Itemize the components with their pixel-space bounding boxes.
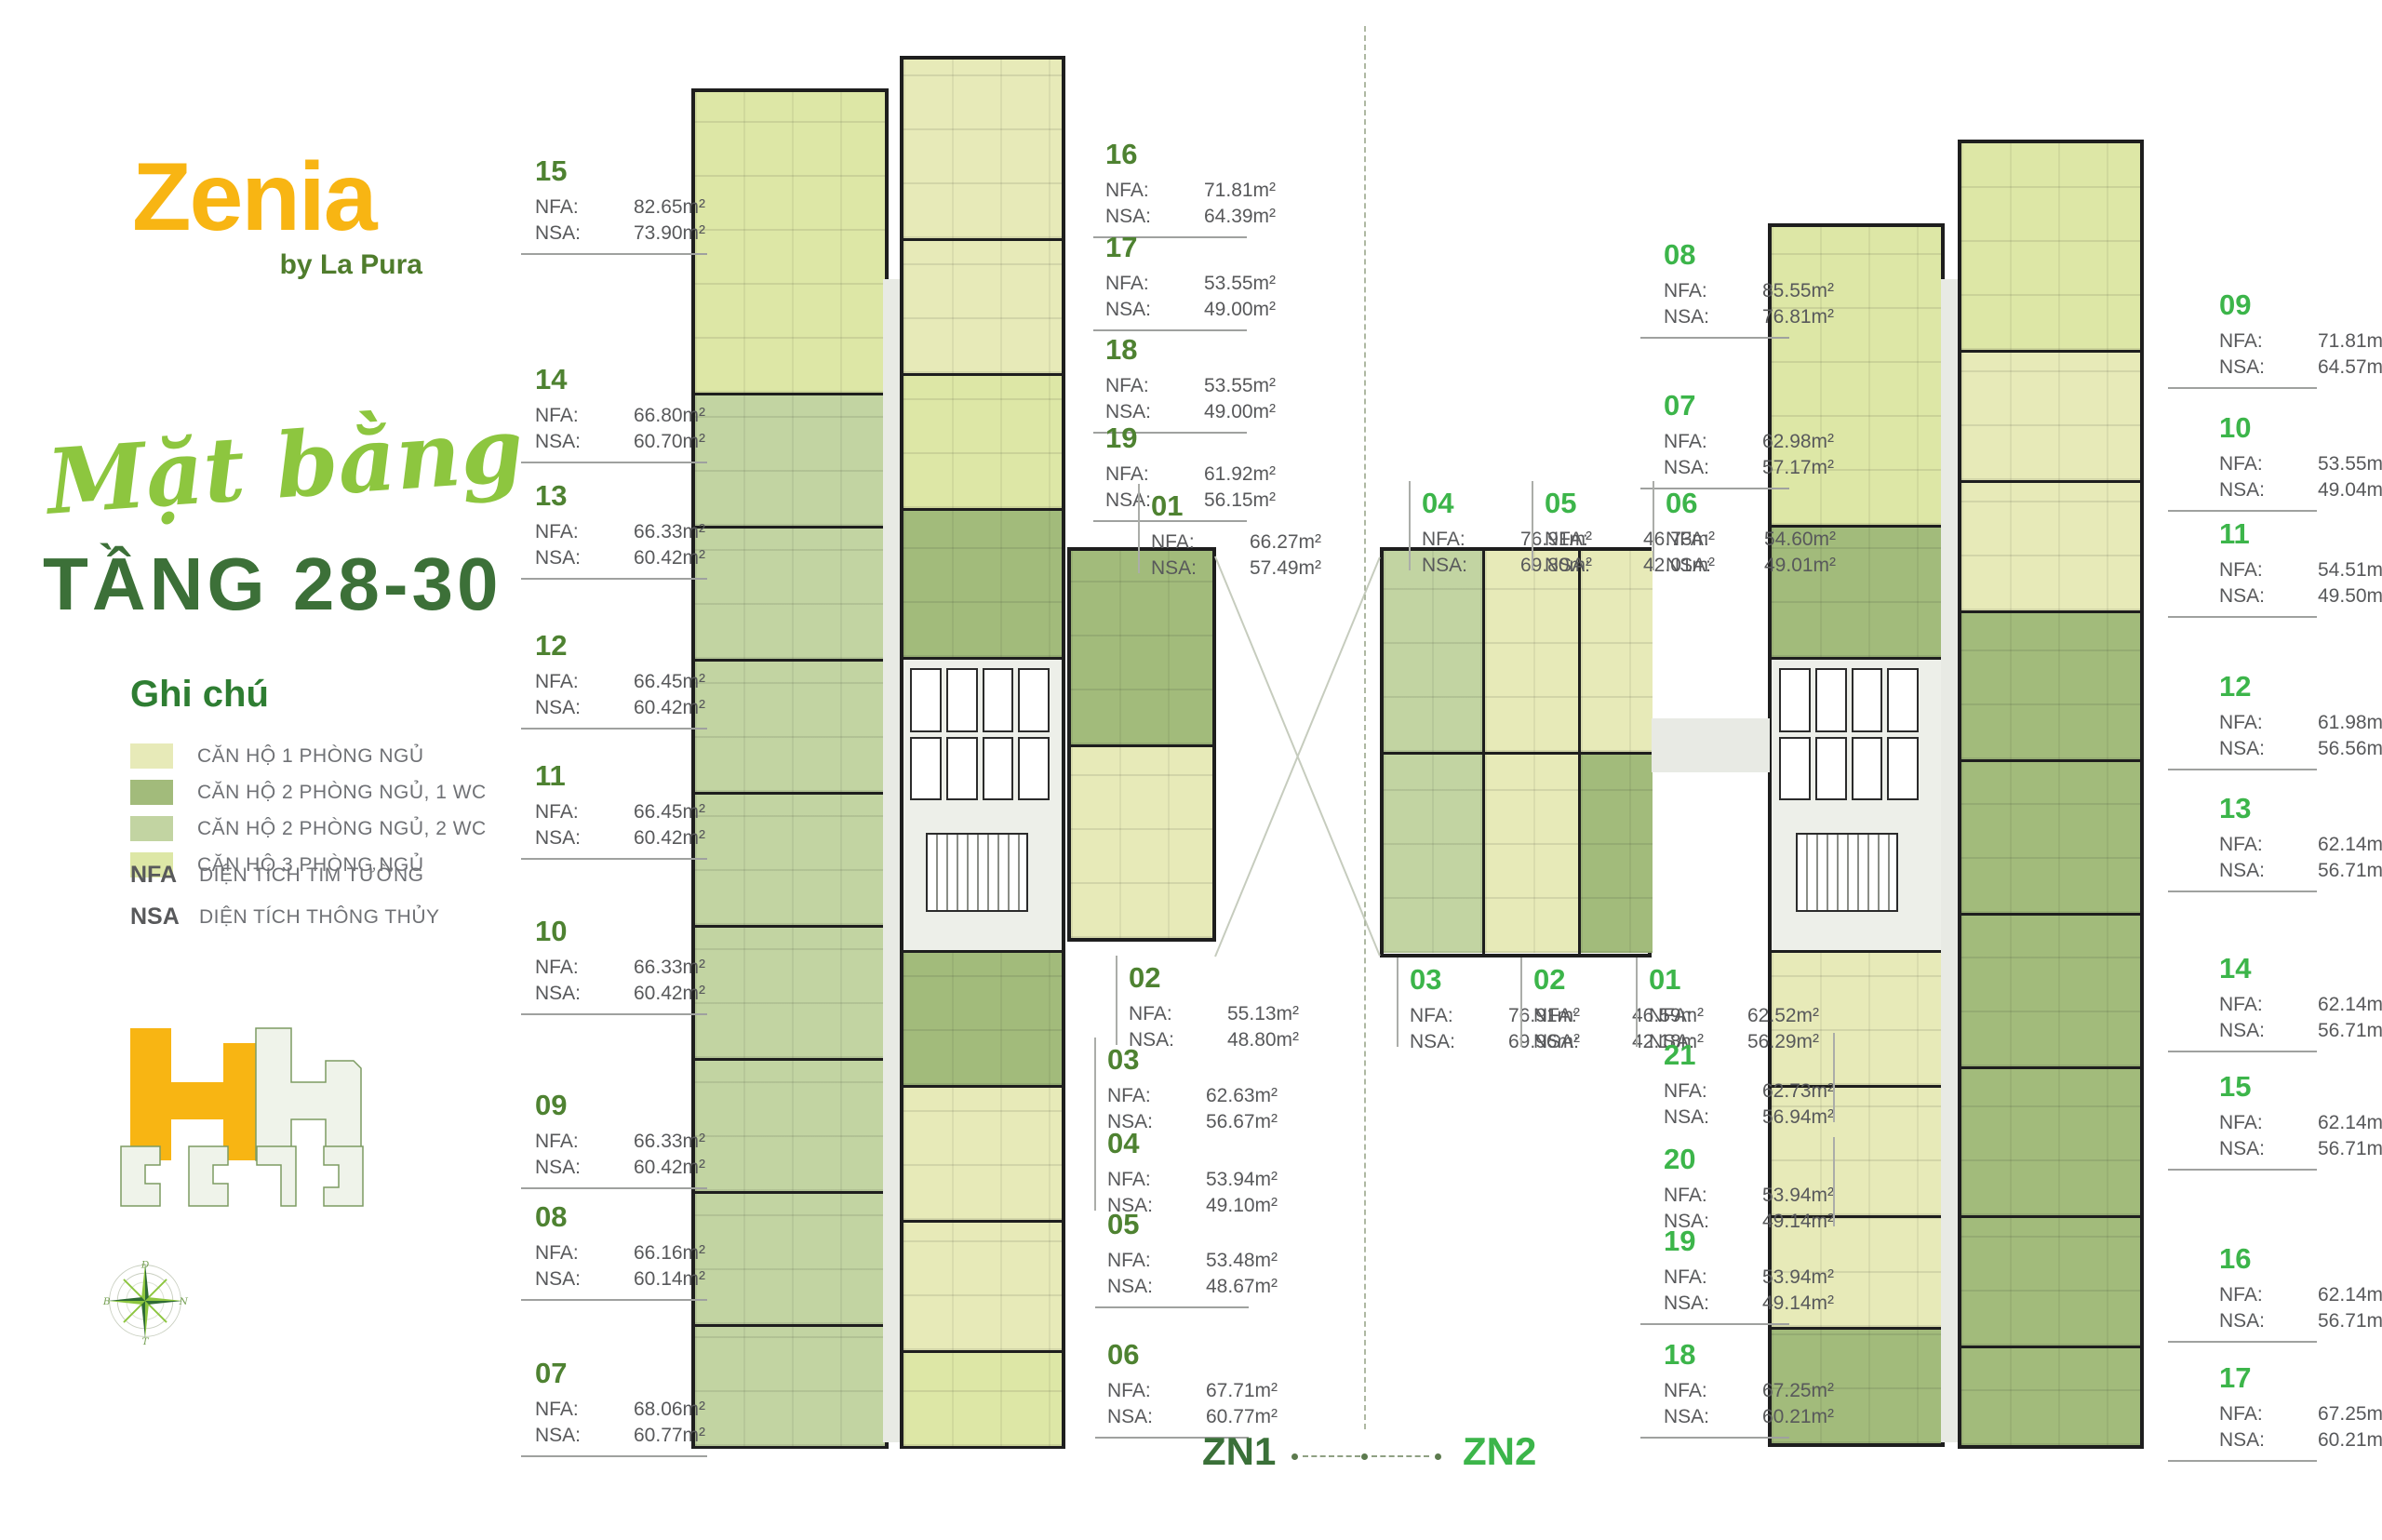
area-value: 56.71m² <box>2318 1136 2382 1162</box>
area-value: 53.94m² <box>1762 1265 1834 1291</box>
abbreviation-key: NFA <box>130 862 199 889</box>
unit-number: 10 <box>2219 413 2382 442</box>
apartment-unit-block <box>1581 752 1653 953</box>
area-value: 66.33m² <box>634 1129 705 1155</box>
unit-area-row: NSA:56.56m² <box>2219 736 2382 762</box>
unit-area-row: NSA:49.01m² <box>1666 553 1861 579</box>
area-value: 85.55m² <box>1762 278 1834 304</box>
elevator-cell <box>983 737 1014 801</box>
area-value: 48.67m² <box>1206 1274 1278 1300</box>
callout-leader-rule <box>2168 616 2317 618</box>
unit-callout-zn2-10: 10NFA:53.55m²NSA:49.04m² <box>2219 413 2382 503</box>
callout-leader-rule <box>521 1455 707 1457</box>
legend-item: CĂN HỘ 2 PHÒNG NGỦ, 2 WC <box>130 810 487 847</box>
site-keyplan <box>119 1024 370 1219</box>
brand-logo: Zenia by La Pura <box>132 149 426 281</box>
legend-item-label: CĂN HỘ 1 PHÒNG NGỦ <box>197 745 424 768</box>
unit-callout-zn1-05: 05NFA:53.48m²NSA:48.67m² <box>1107 1210 1303 1300</box>
area-label: NFA: <box>1107 1378 1161 1404</box>
unit-area-row: NFA:67.71m² <box>1107 1378 1303 1404</box>
keyplan-building-outline <box>256 1028 361 1160</box>
unit-callout-zn1-02: 02NFA:55.13m²NSA:48.80m² <box>1129 963 1324 1053</box>
unit-number: 17 <box>1105 233 1301 261</box>
unit-callout-zn2-16: 16NFA:62.14m²NSA:56.71m² <box>2219 1244 2382 1334</box>
unit-number: 16 <box>2219 1244 2382 1273</box>
unit-callout-zn1-12: 12NFA:66.45m²NSA:60.42m² <box>535 631 730 721</box>
area-label: NFA: <box>1664 278 1718 304</box>
area-label: NFA: <box>1533 1003 1587 1029</box>
area-label: NFA: <box>1664 1265 1718 1291</box>
area-value: 53.48m² <box>1206 1248 1278 1274</box>
zn1-center-units <box>1067 547 1216 942</box>
unit-area-row: NFA:67.25m² <box>1664 1378 1859 1404</box>
area-value: 66.27m² <box>1250 529 1321 556</box>
area-label: NFA: <box>535 194 589 221</box>
apartment-unit-block <box>1961 610 2140 759</box>
area-value: 60.77m² <box>1206 1404 1278 1430</box>
unit-number: 20 <box>1664 1145 1859 1173</box>
apartment-unit-block <box>903 508 1062 657</box>
area-label: NSA: <box>2219 477 2273 503</box>
zn2-elevator-bank <box>1779 668 1919 800</box>
unit-number: 15 <box>535 156 730 185</box>
callout-leader-rule <box>1093 329 1247 331</box>
floorplan-poster: Zenia by La Pura Mặt bằng TẦNG 28-30 Ghi… <box>0 0 2382 1540</box>
zone-connector-dot <box>1291 1453 1298 1460</box>
legend-abbreviations: NFADIỆN TÍCH TIM TƯỜNGNSADIỆN TÍCH THÔNG… <box>130 854 440 938</box>
area-label: NFA: <box>2219 1282 2273 1308</box>
area-value: 60.77m² <box>634 1423 705 1449</box>
apartment-unit-block <box>1961 143 2140 350</box>
callout-leader-rule <box>521 462 707 463</box>
callout-leader-rule <box>521 1013 707 1015</box>
unit-area-row: NFA:62.14m² <box>2219 992 2382 1018</box>
zone-connector-dot <box>1435 1453 1441 1460</box>
area-value: 82.65m² <box>634 194 705 221</box>
area-label: NSA: <box>2219 583 2273 609</box>
apartment-unit-block <box>1961 350 2140 480</box>
area-label: NSA: <box>1533 1029 1587 1055</box>
unit-number: 19 <box>1105 423 1301 452</box>
unit-callout-zn1-06: 06NFA:67.71m²NSA:60.77m² <box>1107 1340 1303 1430</box>
unit-area-row: NFA:62.63m² <box>1107 1083 1303 1109</box>
unit-number: 13 <box>2219 794 2382 823</box>
unit-area-row: NFA:67.25m² <box>2219 1401 2382 1427</box>
area-value: 62.14m² <box>2318 1282 2382 1308</box>
elevator-cell <box>1887 737 1919 801</box>
unit-area-row: NSA:60.70m² <box>535 429 730 455</box>
unit-number: 10 <box>535 917 730 945</box>
area-label: NSA: <box>2219 1136 2273 1162</box>
unit-area-row: NFA:53.94m² <box>1664 1265 1859 1291</box>
unit-area-row: NSA:60.21m² <box>2219 1427 2382 1453</box>
area-value: 49.14m² <box>1762 1291 1834 1317</box>
unit-callout-zn1-15: 15NFA:82.65m²NSA:73.90m² <box>535 156 730 247</box>
area-label: NFA: <box>535 1397 589 1423</box>
abbreviation-key: NSA <box>130 904 199 931</box>
area-value: 56.71m² <box>2318 1018 2382 1044</box>
unit-area-row: NFA:68.06m² <box>535 1397 730 1423</box>
area-label: NFA: <box>2219 992 2273 1018</box>
area-value: 71.81m² <box>2318 328 2382 355</box>
unit-area-row: NSA:60.42m² <box>535 825 730 851</box>
area-label: NFA: <box>535 799 589 825</box>
apartment-unit-block <box>903 1085 1062 1220</box>
area-label: NFA: <box>535 1129 589 1155</box>
unit-area-row: NFA:66.33m² <box>535 1129 730 1155</box>
area-label: NFA: <box>535 669 589 695</box>
callout-leader-rule <box>521 253 707 255</box>
zn1-corridor <box>883 279 900 1442</box>
area-label: NSA: <box>1664 1105 1718 1131</box>
area-label: NSA: <box>1105 297 1159 323</box>
legend-item: CĂN HỘ 2 PHÒNG NGỦ, 1 WC <box>130 774 487 810</box>
elevator-cell <box>1018 668 1050 732</box>
unit-callout-zn1-18: 18NFA:53.55m²NSA:49.00m² <box>1105 335 1301 425</box>
area-value: 57.49m² <box>1250 556 1321 582</box>
unit-number: 09 <box>2219 290 2382 319</box>
area-label: NFA: <box>1410 1003 1464 1029</box>
zone-label-zn1: ZN1 <box>1202 1429 1276 1474</box>
area-value: 53.55m² <box>2318 451 2382 477</box>
unit-area-row: NFA:85.55m² <box>1664 278 1859 304</box>
zn2-east-wing <box>1958 140 2144 1449</box>
area-label: NFA: <box>2219 1401 2273 1427</box>
unit-area-row: NFA:66.16m² <box>535 1240 730 1266</box>
compass-icon: Đ N T B <box>100 1256 190 1346</box>
unit-area-row: NSA:49.14m² <box>1664 1291 1859 1317</box>
area-label: NFA: <box>1545 527 1599 553</box>
legend-abbreviation: NSADIỆN TÍCH THÔNG THỦY <box>130 896 440 938</box>
legend-item-label: CĂN HỘ 2 PHÒNG NGỦ, 2 WC <box>197 818 487 840</box>
unit-area-row: NFA:82.65m² <box>535 194 730 221</box>
area-label: NSA: <box>535 1155 589 1181</box>
unit-area-row: NFA:62.73m² <box>1664 1078 1859 1105</box>
unit-area-row: NFA:71.81m² <box>1105 178 1301 204</box>
unit-number: 07 <box>535 1359 730 1387</box>
unit-callout-zn2-18: 18NFA:67.25m²NSA:60.21m² <box>1664 1340 1859 1430</box>
area-value: 60.70m² <box>634 429 705 455</box>
area-label: NFA: <box>2219 1110 2273 1136</box>
zn1-stairs <box>926 833 1028 912</box>
unit-column <box>1578 551 1653 954</box>
area-label: NFA: <box>1666 527 1720 553</box>
area-label: NSA: <box>535 429 589 455</box>
unit-area-row: NSA:60.77m² <box>535 1423 730 1449</box>
apartment-unit-block <box>903 373 1062 508</box>
area-value: 67.25m² <box>1762 1378 1834 1404</box>
unit-area-row: NSA:76.81m² <box>1664 304 1859 330</box>
area-label: NSA: <box>1105 204 1159 230</box>
unit-area-row: NFA:54.51m² <box>2219 557 2382 583</box>
elevator-cell <box>910 668 942 732</box>
unit-number: 05 <box>1107 1210 1303 1239</box>
area-label: NFA: <box>2219 710 2273 736</box>
unit-callout-zn2-21: 21NFA:62.73m²NSA:56.94m² <box>1664 1040 1859 1131</box>
area-value: 64.39m² <box>1204 204 1276 230</box>
unit-area-row: NSA:49.04m² <box>2219 477 2382 503</box>
legend-swatch <box>130 780 173 805</box>
apartment-unit-block <box>1384 551 1482 752</box>
unit-number: 01 <box>1151 491 1346 520</box>
callout-leader-rule <box>521 1187 707 1189</box>
legend-heading: Ghi chú <box>130 674 269 716</box>
unit-area-row: NFA:61.98m² <box>2219 710 2382 736</box>
area-label: NFA: <box>1664 1078 1718 1105</box>
unit-number: 12 <box>2219 672 2382 701</box>
abbreviation-label: DIỆN TÍCH TIM TƯỜNG <box>199 864 423 887</box>
area-value: 64.57m² <box>2318 355 2382 381</box>
area-label: NSA: <box>1107 1404 1161 1430</box>
area-value: 57.17m² <box>1762 455 1834 481</box>
unit-callout-zn2-20: 20NFA:53.94m²NSA:49.14m² <box>1664 1145 1859 1235</box>
area-label: NSA: <box>1410 1029 1464 1055</box>
area-label: NFA: <box>2219 557 2273 583</box>
unit-callout-zn1-13: 13NFA:66.33m²NSA:60.42m² <box>535 481 730 571</box>
area-value: 66.33m² <box>634 955 705 981</box>
area-label: NSA: <box>1664 1404 1718 1430</box>
unit-callout-zn2-19: 19NFA:53.94m²NSA:49.14m² <box>1664 1226 1859 1317</box>
svg-text:N: N <box>179 1296 189 1307</box>
area-label: NSA: <box>535 981 589 1007</box>
unit-callout-zn2-12: 12NFA:61.98m²NSA:56.56m² <box>2219 672 2382 762</box>
area-label: NFA: <box>1107 1248 1161 1274</box>
svg-text:B: B <box>102 1296 111 1307</box>
unit-column <box>1482 551 1578 954</box>
callout-leader-rule <box>521 858 707 860</box>
apartment-unit-block <box>1961 759 2140 913</box>
unit-callout-zn1-01: 01NFA:66.27m²NSA:57.49m² <box>1151 491 1346 582</box>
area-label: NFA: <box>2219 328 2273 355</box>
area-value: 62.14m² <box>2318 832 2382 858</box>
unit-callout-zn2-11: 11NFA:54.51m²NSA:49.50m² <box>2219 519 2382 609</box>
callout-leader-line <box>1833 1137 1835 1226</box>
area-value: 61.92m² <box>1204 462 1276 488</box>
area-label: NSA: <box>2219 858 2273 884</box>
area-value: 62.52m² <box>1747 1003 1819 1029</box>
unit-area-row: NFA:53.48m² <box>1107 1248 1303 1274</box>
area-label: NFA: <box>1664 429 1718 455</box>
elevator-cell <box>1887 668 1919 732</box>
apartment-unit-block <box>903 1350 1062 1446</box>
legend-abbreviation: NFADIỆN TÍCH TIM TƯỜNG <box>130 854 440 896</box>
area-value: 53.55m² <box>1204 373 1276 399</box>
area-label: NSA: <box>535 695 589 721</box>
unit-callout-zn2-08: 08NFA:85.55m²NSA:76.81m² <box>1664 240 1859 330</box>
unit-area-row: NFA:62.14m² <box>2219 832 2382 858</box>
area-label: NFA: <box>535 1240 589 1266</box>
area-value: 53.94m² <box>1206 1167 1278 1193</box>
unit-area-row: NSA:64.57m² <box>2219 355 2382 381</box>
callout-leader-line <box>1094 1121 1096 1211</box>
elevator-cell <box>1815 668 1847 732</box>
area-value: 76.81m² <box>1762 304 1834 330</box>
area-value: 60.21m² <box>1762 1404 1834 1430</box>
area-value: 56.94m² <box>1762 1105 1834 1131</box>
brand-name: Zenia <box>132 149 426 246</box>
apartment-unit-block <box>1961 913 2140 1066</box>
callout-leader-rule <box>1640 1437 1789 1439</box>
area-value: 61.98m² <box>2318 710 2382 736</box>
area-label: NSA: <box>1422 553 1476 579</box>
zone-divider-line <box>1364 26 1366 1429</box>
unit-callout-zn1-04: 04NFA:53.94m²NSA:49.10m² <box>1107 1129 1303 1219</box>
area-value: 49.00m² <box>1204 399 1276 425</box>
unit-number: 14 <box>2219 954 2382 983</box>
apartment-unit-block <box>903 950 1062 1085</box>
area-label: NFA: <box>1151 529 1205 556</box>
area-value: 67.25m² <box>2318 1401 2382 1427</box>
unit-number: 13 <box>535 481 730 510</box>
unit-area-row: NFA:61.92m² <box>1105 462 1301 488</box>
area-label: NFA: <box>1107 1083 1161 1109</box>
area-value: 60.14m² <box>634 1266 705 1292</box>
unit-callout-zn2-17: 17NFA:67.25m²NSA:60.21m² <box>2219 1363 2382 1453</box>
area-label: NFA: <box>1664 1378 1718 1404</box>
unit-area-row: NSA:73.90m² <box>535 221 730 247</box>
callout-leader-rule <box>1640 1323 1789 1325</box>
area-label: NFA: <box>1105 271 1159 297</box>
area-value: 56.56m² <box>2318 736 2382 762</box>
unit-number: 07 <box>1664 391 1859 420</box>
callout-leader-rule <box>521 1299 707 1301</box>
area-label: NFA: <box>1105 373 1159 399</box>
area-value: 56.71m² <box>2318 858 2382 884</box>
elevator-cell <box>1852 668 1883 732</box>
unit-number: 02 <box>1129 963 1324 992</box>
area-value: 66.45m² <box>634 799 705 825</box>
callout-leader-rule <box>521 728 707 730</box>
unit-number: 08 <box>535 1202 730 1231</box>
area-value: 49.50m² <box>2318 583 2382 609</box>
unit-number: 03 <box>1107 1045 1303 1074</box>
brand-byline: by La Pura <box>132 249 426 281</box>
area-label: NSA: <box>1664 304 1718 330</box>
area-label: NFA: <box>535 519 589 545</box>
area-value: 68.06m² <box>634 1397 705 1423</box>
unit-area-row: NSA:60.42m² <box>535 981 730 1007</box>
area-value: 60.21m² <box>2318 1427 2382 1453</box>
elevator-cell <box>1852 737 1883 801</box>
svg-text:Đ: Đ <box>141 1259 150 1270</box>
unit-column <box>1384 551 1482 954</box>
page-title-script: Mặt bằng <box>44 396 527 534</box>
unit-callout-zn2-07: 07NFA:62.98m²NSA:57.17m² <box>1664 391 1859 481</box>
apartment-unit-block <box>1485 551 1578 752</box>
apartment-unit-block <box>903 238 1062 373</box>
legend-item: CĂN HỘ 1 PHÒNG NGỦ <box>130 738 487 774</box>
elevator-cell <box>1815 737 1847 801</box>
unit-number: 19 <box>1664 1226 1859 1255</box>
area-label: NFA: <box>2219 832 2273 858</box>
elevator-cell <box>1779 737 1811 801</box>
unit-number: 01 <box>1649 965 1844 994</box>
area-value: 67.71m² <box>1206 1378 1278 1404</box>
unit-number: 14 <box>535 365 730 394</box>
area-label: NSA: <box>535 825 589 851</box>
unit-callout-zn1-16: 16NFA:71.81m²NSA:64.39m² <box>1105 140 1301 230</box>
area-value: 49.01m² <box>1764 553 1836 579</box>
area-label: NFA: <box>1129 1001 1183 1027</box>
unit-area-row: NFA:62.14m² <box>2219 1110 2382 1136</box>
area-label: NSA: <box>2219 1427 2273 1453</box>
area-value: 62.98m² <box>1762 429 1834 455</box>
unit-number: 11 <box>535 761 730 790</box>
area-value: 53.55m² <box>1204 271 1276 297</box>
callout-leader-rule <box>1095 1306 1249 1308</box>
unit-area-row: NSA:60.77m² <box>1107 1404 1303 1430</box>
callout-leader-line <box>1653 481 1654 570</box>
elevator-cell <box>1018 737 1050 801</box>
unit-area-row: NSA:60.42m² <box>535 545 730 571</box>
area-value: 54.51m² <box>2318 557 2382 583</box>
callout-leader-rule <box>2168 1051 2317 1052</box>
unit-area-row: NSA:56.71m² <box>2219 1018 2382 1044</box>
unit-area-row: NSA:57.49m² <box>1151 556 1346 582</box>
area-value: 56.71m² <box>2318 1308 2382 1334</box>
unit-area-row: NSA:49.50m² <box>2219 583 2382 609</box>
legend-item-label: CĂN HỘ 2 PHÒNG NGỦ, 1 WC <box>197 782 487 804</box>
zn2-stairs <box>1796 833 1898 912</box>
unit-callout-zn2-15: 15NFA:62.14m²NSA:56.71m² <box>2219 1072 2382 1162</box>
unit-area-row: NFA:66.33m² <box>535 519 730 545</box>
area-label: NFA: <box>535 955 589 981</box>
area-value: 66.16m² <box>634 1240 705 1266</box>
callout-leader-rule <box>2168 387 2317 389</box>
area-label: NSA: <box>535 221 589 247</box>
area-value: 49.04m² <box>2318 477 2382 503</box>
unit-area-row: NFA:53.94m² <box>1107 1167 1303 1193</box>
area-value: 60.42m² <box>634 981 705 1007</box>
apartment-unit-block <box>903 60 1062 238</box>
area-value: 62.14m² <box>2318 1110 2382 1136</box>
unit-number: 17 <box>2219 1363 2382 1392</box>
area-label: NSA: <box>2219 1018 2273 1044</box>
area-label: NSA: <box>1545 553 1599 579</box>
unit-area-row: NSA:64.39m² <box>1105 204 1301 230</box>
unit-number: 12 <box>535 631 730 660</box>
area-label: NFA: <box>2219 451 2273 477</box>
zn1-elevator-bank <box>910 668 1050 800</box>
unit-number: 15 <box>2219 1072 2382 1101</box>
area-value: 71.81m² <box>1204 178 1276 204</box>
svg-text:T: T <box>141 1336 149 1346</box>
unit-number: 09 <box>535 1091 730 1119</box>
unit-area-row: NSA:60.42m² <box>535 695 730 721</box>
area-label: NFA: <box>535 403 589 429</box>
unit-number: 08 <box>1664 240 1859 269</box>
zone-connector-dash <box>1303 1455 1360 1457</box>
area-value: 66.80m² <box>634 403 705 429</box>
elevator-cell <box>910 737 942 801</box>
unit-area-row: NSA:57.17m² <box>1664 455 1859 481</box>
area-label: NSA: <box>1107 1274 1161 1300</box>
callout-leader-line <box>1138 484 1140 573</box>
elevator-cell <box>1779 668 1811 732</box>
unit-area-row: NSA:60.21m² <box>1664 1404 1859 1430</box>
area-label: NFA: <box>1105 178 1159 204</box>
elevator-cell <box>946 737 978 801</box>
area-value: 73.90m² <box>634 221 705 247</box>
area-label: NFA: <box>1649 1003 1703 1029</box>
abbreviation-label: DIỆN TÍCH THÔNG THỦY <box>199 906 440 929</box>
unit-area-row: NSA:48.67m² <box>1107 1274 1303 1300</box>
unit-area-row: NSA:60.42m² <box>535 1155 730 1181</box>
area-label: NFA: <box>1422 527 1476 553</box>
zn2-corridor <box>1941 279 1958 1442</box>
unit-area-row: NFA:53.55m² <box>1105 373 1301 399</box>
unit-area-row: NSA:56.71m² <box>2219 1308 2382 1334</box>
